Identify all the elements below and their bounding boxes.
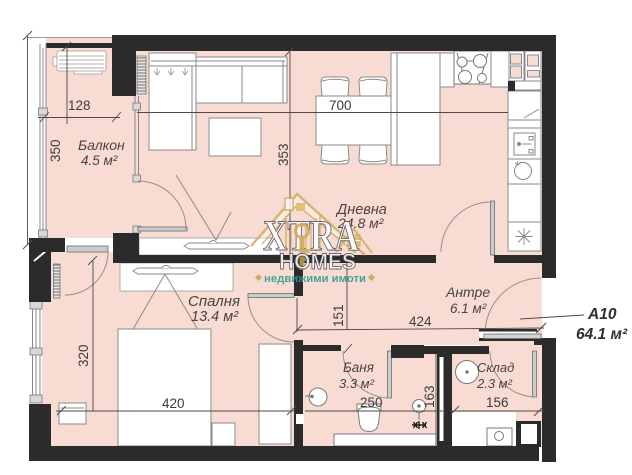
svg-text:4.5 м²: 4.5 м² [81, 153, 118, 168]
svg-text:HOMES: HOMES [279, 249, 356, 274]
svg-text:424: 424 [409, 314, 432, 329]
svg-text:Спалня: Спалня [188, 293, 240, 310]
svg-text:163: 163 [422, 385, 437, 408]
svg-text:128: 128 [68, 98, 91, 113]
svg-text:64.1 м²: 64.1 м² [576, 326, 628, 343]
svg-text:700: 700 [329, 98, 352, 113]
svg-text:A10: A10 [587, 306, 617, 323]
svg-text:3.3 м²: 3.3 м² [339, 376, 375, 391]
svg-text:156: 156 [486, 395, 509, 410]
svg-text:350: 350 [48, 139, 63, 162]
svg-text:недвижими имоти: недвижими имоти [264, 273, 366, 285]
svg-text:Балкон: Балкон [78, 137, 125, 153]
svg-text:2.3 м²: 2.3 м² [476, 376, 513, 391]
svg-text:Антре: Антре [445, 284, 490, 300]
svg-text:320: 320 [76, 344, 91, 367]
svg-text:353: 353 [276, 143, 291, 166]
svg-text:Склад: Склад [477, 360, 514, 375]
svg-text:420: 420 [162, 396, 185, 411]
svg-text:13.4 м²: 13.4 м² [191, 309, 239, 325]
svg-text:250: 250 [360, 395, 383, 410]
svg-text:6.1 м²: 6.1 м² [450, 301, 487, 316]
svg-text:151: 151 [331, 304, 346, 327]
svg-text:Баня: Баня [343, 360, 374, 375]
